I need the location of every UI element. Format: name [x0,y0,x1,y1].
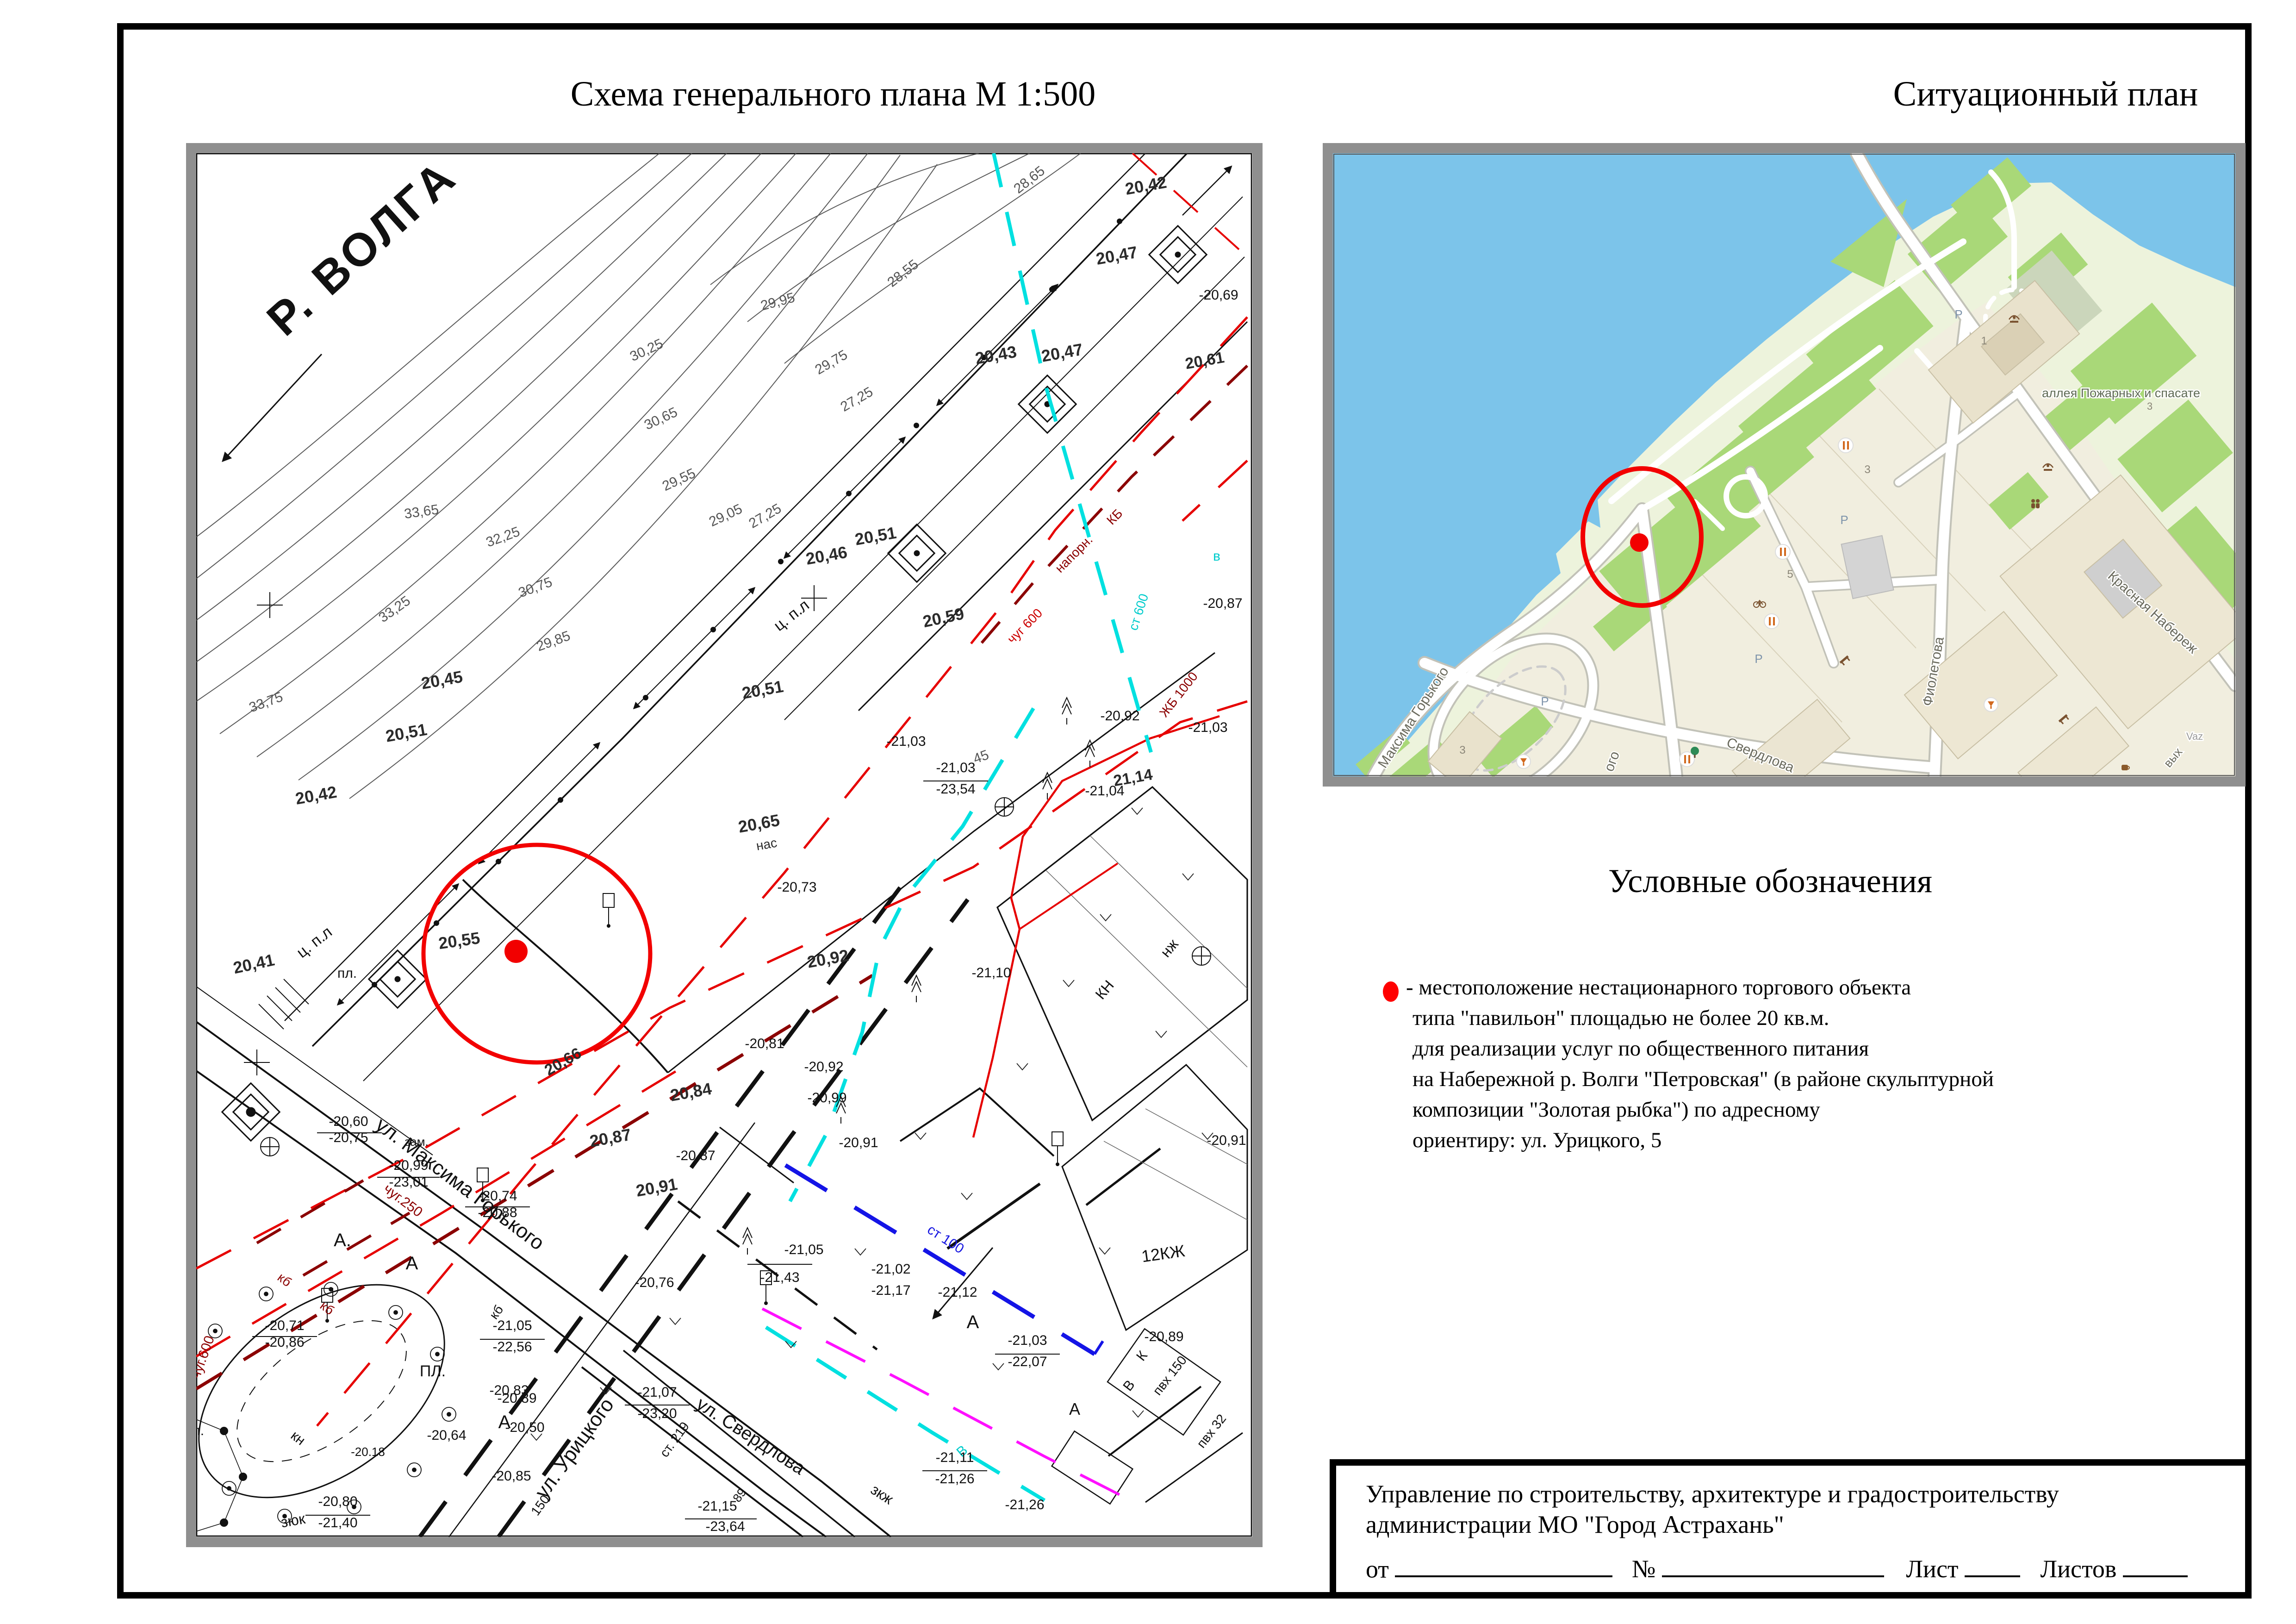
number-blank-field [1662,1552,1884,1577]
map-label: -20,64 [427,1428,466,1443]
legend-line: для реализации услуг по общественного пи… [1412,1033,2203,1064]
map-label: -20,91 [1207,1133,1246,1148]
map-label: -20,92 [804,1059,843,1074]
map-label: 1 [1981,335,1987,347]
org-name-line1: Управление по строительству, архитектуре… [1366,1479,2245,1509]
document-page: { "titles": { "main": "Схема генеральног… [0,0,2296,1624]
map-label: -22,07 [1008,1354,1047,1369]
situation-map-frame: аллея Пожарных и спасатеКрасная НабережФ… [1323,143,2246,787]
map-label: -21,40 [318,1515,357,1530]
map-label: -21,15 [697,1499,737,1514]
number-label: № [1632,1555,1656,1583]
page-title-genplan: Схема генерального плана М 1:500 [463,74,1203,114]
genplan-map: Р. ВОЛГА28,6528,5529,9529,7527,2527,2533… [196,153,1252,1537]
situation-map: аллея Пожарных и спасатеКрасная НабережФ… [1333,153,2235,776]
map-label: -20,73 [777,880,816,895]
genplan-map-frame: Р. ВОЛГА28,6528,5529,9529,7527,2527,2533… [186,143,1263,1547]
map-label: в [1213,549,1220,564]
map-label: -21,02 [871,1262,910,1277]
cafe-icon [1984,698,1998,712]
map-label: Vaz [2186,731,2203,742]
map-label: -20,76 [635,1275,674,1290]
map-label: А. [334,1230,351,1250]
map-label: -20,60 [329,1114,368,1129]
legend-title: Условные обозначения [1493,862,2048,900]
map-label: А [406,1253,418,1274]
map-label: -21,03 [1008,1333,1047,1348]
situation-location-dot [1630,533,1649,552]
map-label: -21,10 [971,965,1011,981]
legend-line: на Набережной р. Волги "Петровская" (в р… [1412,1064,2203,1094]
sheet-blank-field [1965,1552,2020,1577]
map-label: -21,26 [935,1471,974,1487]
map-label: -21,12 [938,1285,977,1300]
from-label: от [1366,1555,1389,1583]
map-label: -23,54 [936,781,975,797]
map-label: пл. [196,1423,204,1438]
map-label: аллея Пожарных и спасате [2042,386,2200,400]
restaurant-icon [1838,438,1853,453]
map-label: -20,80 [318,1494,357,1509]
map-label: -21,03 [936,760,975,775]
map-label: 3 [2147,400,2153,412]
org-name-line2: администрации МО "Город Астрахань" [1366,1509,2245,1540]
map-label: -23,20 [637,1406,677,1421]
map-label: ПЛ. [420,1362,446,1380]
map-label: 3 [1864,463,1870,476]
title-block: Управление по строительству, архитектуре… [1330,1459,2252,1599]
map-label: Р [1541,694,1549,708]
cafe-icon [1517,755,1531,768]
map-label: -20,86 [265,1335,304,1350]
map-label: -20,99 [807,1090,846,1106]
map-label: -21,26 [1005,1497,1044,1512]
map-label: А [1069,1399,1080,1418]
location-marker-dot [504,940,528,963]
map-label: А [967,1312,979,1332]
sheet-label: Лист [1906,1555,1958,1583]
map-label: -20,89 [497,1391,536,1406]
map-label: -20,89 [1144,1329,1183,1344]
map-label: -23,64 [705,1519,745,1534]
from-blank-field [1395,1552,1612,1577]
map-label: -22,56 [492,1339,532,1355]
map-label: -21,03 [886,734,926,749]
map-label: -21,07 [637,1385,677,1400]
page-title-situation: Ситуационный план [1851,74,2240,114]
map-label: -20,71 [265,1318,304,1333]
map-label: -21,17 [871,1283,910,1298]
legend-line: композиции "Золотая рыбка") по адресному [1412,1094,2203,1125]
restaurant-icon [1764,614,1779,629]
sheets-blank-field [2123,1552,2188,1577]
map-label: Р [1954,307,1962,321]
map-label: -20.18 [351,1445,385,1459]
map-label: -21,04 [1085,783,1124,799]
map-label: -21,11 [936,1450,974,1465]
map-label: -20,85 [492,1468,531,1484]
map-label: -21,43 [760,1270,799,1285]
map-label: -20,50 [505,1420,544,1435]
map-label: пл. [337,966,357,981]
title-block-fields: от № Лист Листов [1366,1552,2245,1584]
map-label: -20,69 [1199,287,1238,303]
map-label: -20,92 [1100,708,1139,724]
map-label: 3 [1459,744,1465,756]
map-label: -20,75 [329,1130,368,1145]
map-label: 5 [1787,568,1793,581]
legend-block: - местоположение нестационарного торгово… [1370,972,2203,1156]
map-label: -20,81 [745,1036,784,1051]
restaurant-icon [1775,544,1790,559]
map-label: -20,87 [1203,596,1242,611]
legend-line: типа "павильон" площадью не более 20 кв.… [1412,1003,2203,1033]
sheets-label: Листов [2041,1555,2117,1583]
legend-line: ориентиру: ул. Урицкого, 5 [1412,1125,2203,1156]
legend-line: - местоположение нестационарного торгово… [1406,972,2203,1003]
map-inner-border [197,154,1251,1536]
map-label: -20,87 [676,1148,715,1163]
map-label: Р [1755,652,1762,666]
map-label: -21,03 [1188,720,1227,735]
map-label: -20,91 [839,1135,878,1150]
map-label: Р [1840,513,1848,527]
map-label: -21,05 [784,1242,823,1257]
